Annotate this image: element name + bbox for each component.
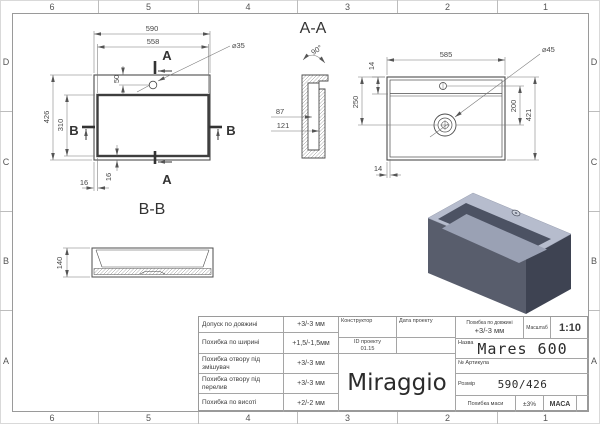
scale-label-cell: Масштаб: [524, 317, 551, 339]
brand-logo: Miraggio: [347, 370, 446, 396]
cut-label-a-bottom: A: [162, 172, 172, 187]
tolerance-value: +3/-3 мм: [284, 374, 339, 394]
section-aa-profile: [302, 75, 328, 158]
project-id-value: 01.15: [361, 346, 375, 353]
dim-421: 421: [524, 109, 533, 122]
section-aa-view: A-A 90° 87 121: [271, 20, 328, 158]
dim-14-top: 14: [367, 62, 376, 70]
dim-140: 140: [55, 257, 64, 270]
leader-line: [455, 54, 540, 117]
section-bb-view: B-B: [92, 201, 213, 277]
dim-16-bottom: 16: [104, 173, 113, 181]
size-cell: Розмір 590/426: [456, 374, 589, 396]
dim-121: 121: [277, 121, 290, 130]
length-tolerance-cell: Похибка по довжині +3/-3 мм: [456, 317, 524, 339]
dim-87: 87: [276, 107, 284, 116]
plan-dimensions: [50, 31, 230, 191]
front-inner-outline: [390, 80, 502, 157]
mass-tolerance-label-cell: Похибка маси: [456, 396, 516, 412]
empty-cell: [577, 396, 589, 412]
dim-585: 585: [440, 50, 453, 59]
angle-90: 90°: [309, 43, 323, 57]
mass-tolerance-value-cell: ±3%: [516, 396, 544, 412]
article-cell: № Артикула: [456, 359, 589, 374]
dim-200: 200: [509, 100, 518, 113]
scale-value-cell: 1:10: [551, 317, 589, 339]
project-id-cell: ID проекту 01.15: [339, 338, 397, 354]
tolerance-value: +1,5/-1,5мм: [284, 333, 339, 354]
name-cell: Назва Mares 600: [456, 339, 589, 359]
cut-label-b-right: B: [226, 123, 235, 138]
dim-50: 50: [112, 75, 121, 83]
dim-558: 558: [147, 37, 160, 46]
section-bb-title: B-B: [139, 201, 166, 218]
tolerance-label: Похибка отвору під перелив: [199, 374, 284, 394]
project-id-label: ID проекту: [354, 339, 381, 346]
mass-label-cell: МАСА: [544, 396, 577, 412]
sink-3d-render: [428, 193, 571, 314]
dia-45: ⌀45: [542, 45, 555, 54]
front-view: [387, 77, 505, 160]
plan-cut-marks: [82, 61, 222, 164]
plan-view: [94, 75, 210, 160]
title-block: Допуск по довжині +3/-3 мм Похибка по ши…: [198, 316, 588, 411]
dia-35: ⌀35: [232, 41, 245, 50]
tolerance-value: +3/-3 мм: [284, 354, 339, 374]
front-outer-outline: [387, 77, 505, 160]
brand-cell: Miraggio: [339, 354, 456, 412]
plan-faucet-hole: [149, 81, 157, 89]
front-dimensions: [358, 54, 540, 178]
cut-label-a-top: A: [162, 48, 172, 63]
dim-16-left: 16: [80, 178, 88, 187]
dim-250: 250: [351, 96, 360, 109]
plan-outer-outline: [94, 75, 210, 160]
drawing-sheet: 6 5 4 3 2 1 6 5 4 3 2 1 D C B A D C B A: [0, 0, 600, 424]
dim-426: 426: [42, 111, 51, 124]
plan-dim-labels: 590 558 ⌀35 50 426 310 16 16 A A B B: [42, 24, 245, 187]
constructor-cell: Конструктор: [339, 317, 397, 338]
section-bb-dimensions: [63, 248, 90, 277]
dim-310: 310: [56, 119, 65, 132]
tolerance-label: Похибка по ширині: [199, 333, 284, 354]
plan-basin-outline: [98, 95, 209, 156]
cut-label-b-left: B: [69, 123, 78, 138]
dim-14-bottom: 14: [374, 164, 382, 173]
section-aa-title: A-A: [300, 20, 327, 37]
tolerance-value: +2/-2 мм: [284, 394, 339, 412]
tolerance-label: Допуск по довжині: [199, 317, 284, 333]
length-tolerance-value: +3/-3 мм: [475, 326, 505, 335]
tolerance-label: Похибка по висоті: [199, 394, 284, 412]
front-dim-labels: 585 ⌀45 14 250 200 421 14: [351, 45, 555, 173]
dim-590: 590: [146, 24, 159, 33]
project-date-cell: Дата проекту: [397, 317, 456, 338]
empty-cell: [397, 338, 456, 354]
tolerance-value: +3/-3 мм: [284, 317, 339, 333]
product-name: Mares 600: [456, 339, 589, 358]
size-value: 590/426: [456, 374, 589, 395]
tolerance-label: Похибка отвору під змішувач: [199, 354, 284, 374]
